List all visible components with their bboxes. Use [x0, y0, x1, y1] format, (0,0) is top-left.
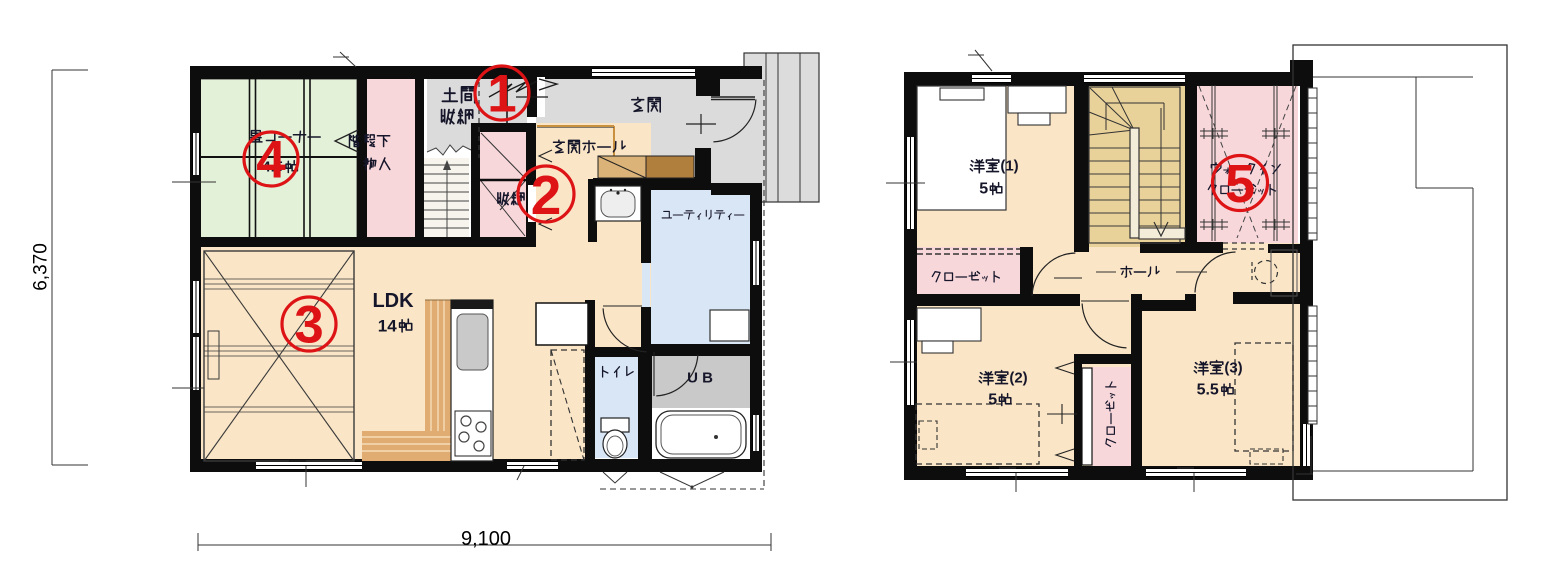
svg-text:2: 2: [531, 164, 562, 226]
svg-text:4: 4: [256, 131, 286, 190]
svg-text:LDK: LDK: [372, 290, 414, 312]
svg-text:(1): (1): [1000, 158, 1018, 175]
svg-text:5: 5: [988, 392, 997, 409]
svg-text:5: 5: [979, 181, 988, 198]
svg-text:5.5: 5.5: [1197, 382, 1219, 399]
svg-text:6,370: 6,370: [31, 243, 52, 291]
svg-text:5: 5: [1225, 154, 1255, 214]
svg-text:9,100: 9,100: [461, 528, 511, 550]
svg-text:14: 14: [378, 317, 397, 336]
svg-text:(2): (2): [1009, 370, 1027, 387]
svg-text:1: 1: [487, 65, 516, 124]
svg-text:3: 3: [294, 296, 323, 355]
svg-text:(3): (3): [1224, 360, 1242, 377]
svg-text:U B: U B: [687, 370, 713, 387]
